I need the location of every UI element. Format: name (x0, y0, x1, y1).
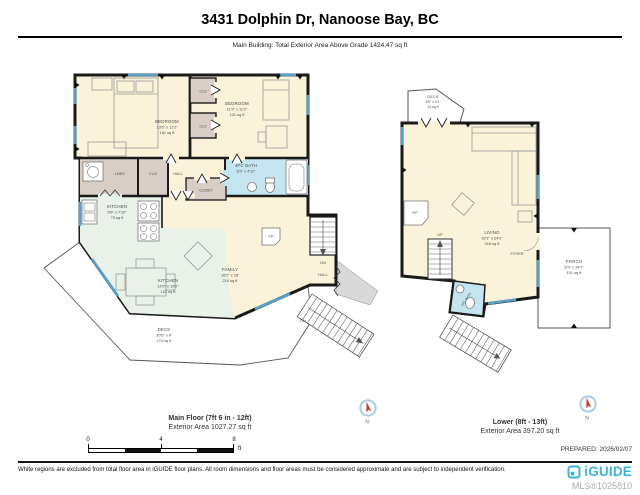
main-floor-plan: DECK 30'5" x 9' 274 sq ft DN (30, 70, 390, 385)
svg-text:CLO: CLO (200, 90, 207, 94)
prepared-date: PREPARED: 2026/02/07 (561, 446, 632, 453)
svg-text:CLO: CLO (149, 172, 157, 176)
svg-text:CLOSET: CLOSET (199, 189, 213, 193)
lower-floor-plan: PORCH 8'9" x 14'7" 101 sq ft DECK 6'5" x… (390, 75, 630, 390)
svg-text:13'6" x 11'2": 13'6" x 11'2" (156, 125, 178, 130)
svg-text:PORCH: PORCH (566, 259, 583, 264)
svg-text:FAMILY: FAMILY (222, 267, 238, 272)
svg-text:16'2" x 16': 16'2" x 16' (221, 273, 239, 278)
svg-text:16'1" x 24'2": 16'1" x 24'2" (481, 236, 503, 241)
svg-text:LNDY: LNDY (115, 172, 126, 176)
svg-text:151 sq ft: 151 sq ft (160, 130, 176, 135)
page-title: 3431 Dolphin Dr, Nanoose Bay, BC (0, 12, 640, 28)
scale-bar: 0 4 8 ft (86, 437, 256, 459)
svg-text:KITCHEN: KITCHEN (107, 204, 127, 209)
svg-text:6'5" x 4'1": 6'5" x 4'1" (426, 100, 442, 104)
svg-text:N: N (365, 420, 369, 426)
lower-porch: PORCH 8'9" x 14'7" 101 sq ft (538, 228, 610, 328)
room-dims: 30'5" x 9' (156, 333, 172, 338)
stairs-label: DN (320, 261, 326, 265)
floor-name: Main Floor (7ft 6 in - 12ft) (115, 414, 305, 423)
svg-text:316 sq ft: 316 sq ft (485, 241, 501, 246)
scale-bar-strip (88, 448, 234, 453)
exterior-stairs-lower (440, 315, 512, 372)
floor-plan-page: 3431 Dolphin Dr, Nanoose Bay, BC Main Bu… (0, 0, 640, 495)
svg-text:LIVING: LIVING (484, 230, 500, 235)
svg-text:UP: UP (437, 233, 443, 237)
svg-text:4PC BATH: 4PC BATH (235, 163, 257, 168)
svg-text:HALL: HALL (173, 172, 183, 176)
scale-tick-8: 8 (229, 437, 239, 443)
svg-text:FOYER: FOYER (510, 252, 523, 256)
svg-text:131 sq ft: 131 sq ft (230, 112, 246, 117)
compass-icon: N (576, 394, 600, 422)
room-area: 274 sq ft (157, 338, 173, 343)
title-divider (18, 36, 622, 38)
svg-text:11'9" x 11'2": 11'9" x 11'2" (227, 107, 248, 112)
svg-text:F/P: F/P (412, 211, 418, 215)
svg-text:DECK: DECK (427, 95, 438, 99)
fireplace-label: F/P (268, 235, 274, 239)
scale-tick-4: 4 (156, 437, 166, 443)
svg-text:121 sq ft: 121 sq ft (161, 289, 177, 294)
svg-text:214 sq ft: 214 sq ft (223, 278, 239, 283)
main-floor-caption: Main Floor (7ft 6 in - 12ft) Exterior Ar… (115, 414, 305, 432)
svg-text:8'9" x 14'7": 8'9" x 14'7" (564, 265, 584, 270)
building-area-subtitle: Main Building: Total Exterior Area Above… (0, 42, 640, 49)
iguide-logo-text: iGUIDE (584, 464, 632, 479)
mls-number: MLS®1025810 (572, 481, 632, 491)
svg-text:KITCHEN: KITCHEN (158, 278, 178, 283)
svg-text:CLO: CLO (200, 125, 207, 129)
compass-icon: N (356, 398, 380, 426)
floor-area: Exterior Area 1027.27 sq ft (115, 423, 305, 432)
lower-fireplace: F/P (404, 201, 428, 225)
svg-text:9'6" x 7'10": 9'6" x 7'10" (107, 210, 127, 215)
svg-text:24 sq ft: 24 sq ft (427, 105, 438, 109)
svg-text:N: N (585, 416, 589, 422)
lower-deck: DECK 6'5" x 4'1" 24 sq ft (408, 89, 464, 122)
room-label: HALL (318, 273, 328, 277)
svg-text:12'0" x 10'2": 12'0" x 10'2" (157, 284, 179, 289)
scale-tick-0: 0 (83, 437, 93, 443)
floor-area: Exterior Area 397.20 sq ft (425, 427, 615, 436)
stairs-label: DN (300, 319, 306, 323)
iguide-logo-icon (567, 465, 581, 479)
iguide-logo: iGUIDE (567, 464, 632, 479)
svg-text:8'2" x 4'11": 8'2" x 4'11" (237, 169, 257, 174)
disclaimer-text: White regions are excluded from total fl… (18, 467, 518, 473)
interior-stairs-up: UP (428, 233, 452, 279)
svg-text:73 sq ft: 73 sq ft (111, 215, 125, 220)
svg-text:BEDROOM: BEDROOM (225, 101, 249, 106)
scale-unit: ft (238, 446, 241, 452)
footer-divider (18, 461, 632, 463)
svg-text:101 sq ft: 101 sq ft (567, 270, 583, 275)
room-label: DECK (158, 327, 171, 332)
svg-text:BEDROOM: BEDROOM (155, 119, 179, 124)
